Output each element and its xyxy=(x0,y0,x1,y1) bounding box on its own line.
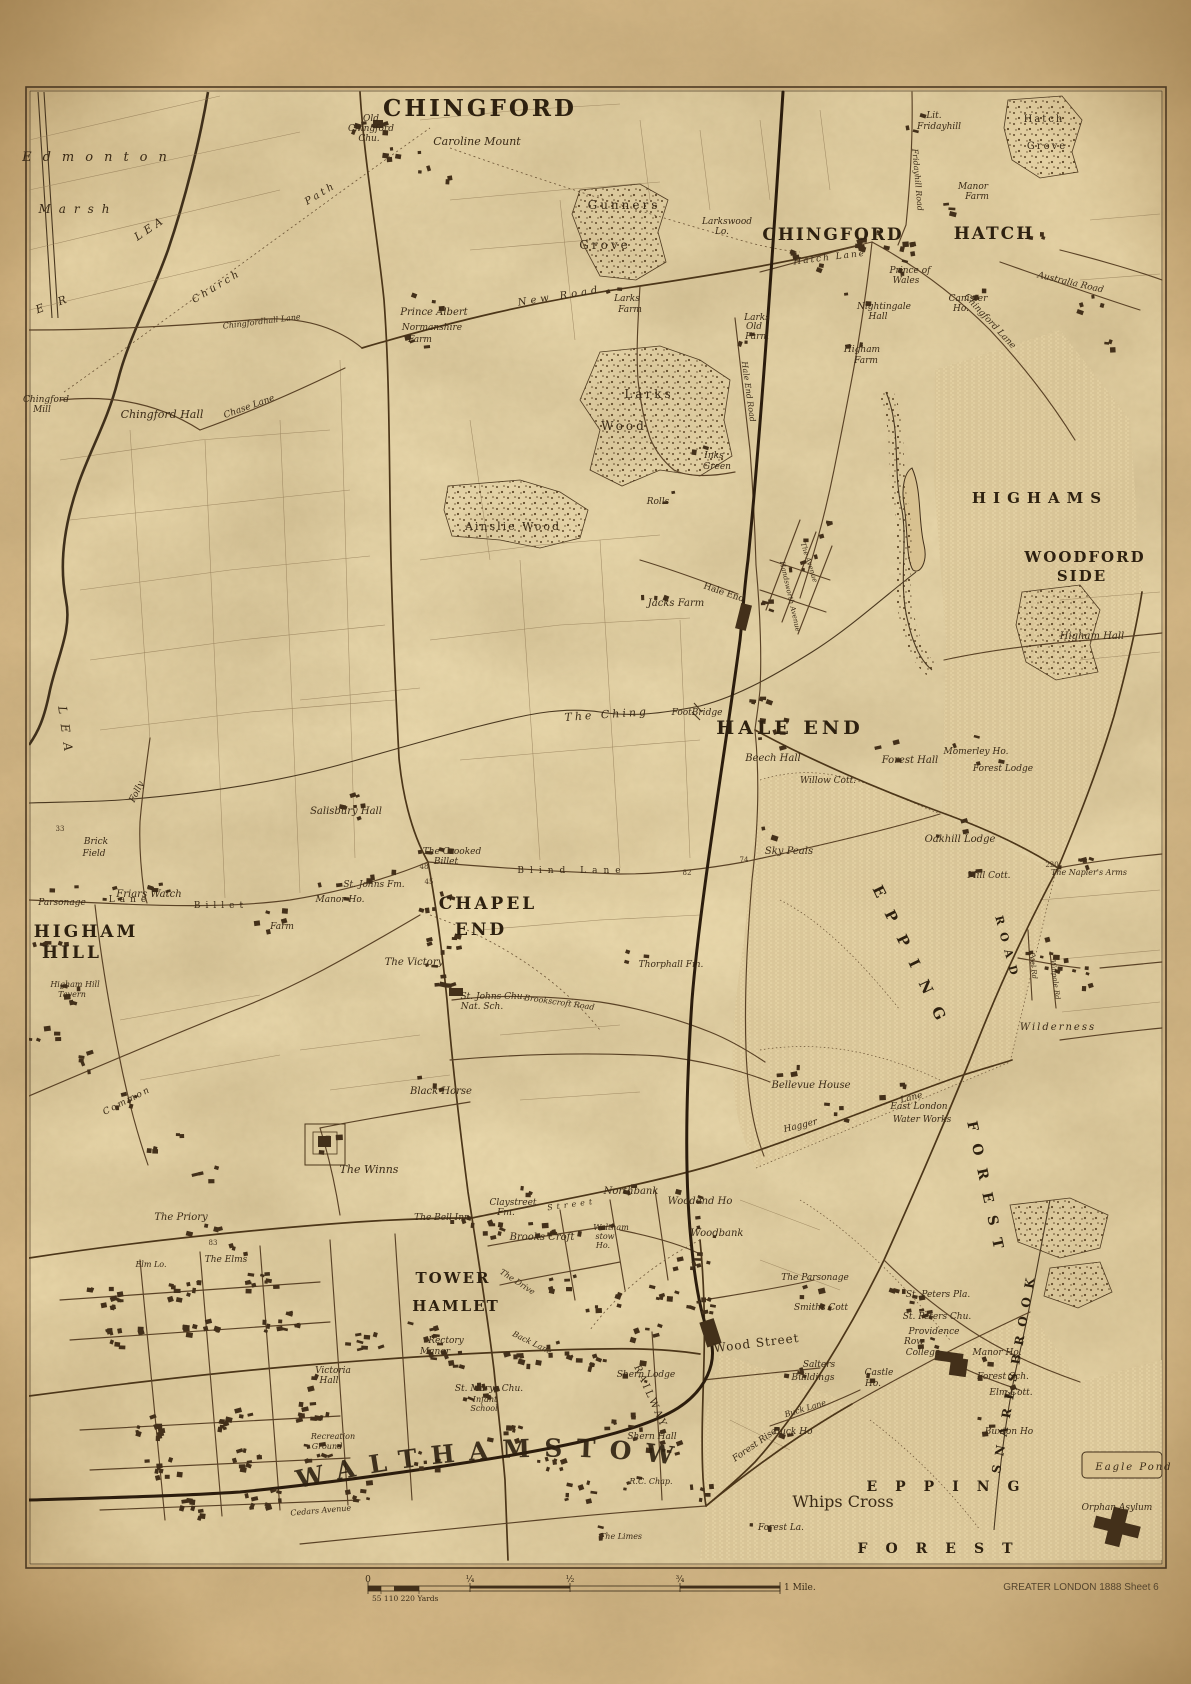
map-label: Oakhill Lodge xyxy=(925,834,996,845)
map-label: Field xyxy=(81,849,105,859)
map-label: FOREST xyxy=(858,1541,1031,1557)
building xyxy=(987,1362,994,1367)
building xyxy=(690,1266,694,1270)
building xyxy=(699,1498,703,1502)
building xyxy=(424,345,430,349)
map-label: Larks xyxy=(613,294,640,304)
building xyxy=(1040,232,1044,237)
map-label: HAMLET xyxy=(412,1297,500,1315)
map-label: Fm. xyxy=(496,1208,515,1218)
building xyxy=(239,1414,244,1418)
building xyxy=(246,1289,252,1294)
map-label: St. Marys Chu. xyxy=(455,1384,523,1394)
building xyxy=(565,1493,569,1497)
building xyxy=(54,1032,60,1036)
building xyxy=(441,950,445,955)
building xyxy=(418,151,422,154)
building xyxy=(117,1291,124,1297)
building xyxy=(631,1415,636,1419)
building xyxy=(709,1484,714,1489)
map-label: Victoria xyxy=(315,1366,351,1376)
building xyxy=(387,157,393,162)
building xyxy=(506,1425,512,1431)
map-label: Woodbank xyxy=(691,1228,744,1239)
map-label: Billet xyxy=(433,857,459,867)
building xyxy=(273,1285,280,1289)
building xyxy=(595,1305,598,1308)
building xyxy=(391,870,396,875)
building xyxy=(535,1360,542,1366)
building xyxy=(691,449,696,455)
building xyxy=(483,1231,488,1236)
map-label: Infant xyxy=(472,1395,498,1404)
building xyxy=(208,1179,214,1183)
map-label: Wales xyxy=(893,276,920,286)
map-label: Orphan Asylum xyxy=(1082,1503,1153,1513)
map-label: The Crooked xyxy=(423,847,482,857)
building xyxy=(186,1332,193,1338)
building xyxy=(254,920,261,926)
map-label: Brick xyxy=(83,837,108,847)
map-label: Billet xyxy=(194,901,248,911)
building xyxy=(777,1073,784,1077)
building xyxy=(641,595,644,600)
map-canvas: CHINGFORDCHINGFORDHATCHHIGHAMSWOODFORDSI… xyxy=(0,0,1191,1684)
map-label: Prince Albert xyxy=(399,307,468,318)
map-label: Farm xyxy=(617,305,642,315)
building xyxy=(761,826,765,830)
building xyxy=(623,1487,627,1490)
map-label: Lane xyxy=(109,895,151,905)
building xyxy=(326,1136,330,1139)
building xyxy=(239,1464,246,1468)
building xyxy=(471,1223,475,1228)
map-label: Elm Cott. xyxy=(988,1388,1032,1398)
map-label: Marsh xyxy=(37,202,117,216)
building xyxy=(576,1358,583,1363)
map-label: Salters xyxy=(803,1360,836,1370)
building xyxy=(182,1325,187,1330)
map-label: CHINGFORD xyxy=(762,225,903,245)
building xyxy=(176,1133,180,1136)
map-label: Salisbury Hall xyxy=(310,806,382,817)
building xyxy=(117,1328,122,1334)
map-label: Mill Cott. xyxy=(966,871,1010,881)
map-label: St. Peters Pla. xyxy=(906,1290,971,1300)
map-label: Chingford Hall xyxy=(121,408,204,421)
map-label: Larks xyxy=(624,387,673,401)
map-label: FootBridge xyxy=(671,708,723,718)
map-label: Wilderness xyxy=(1020,1022,1096,1033)
building xyxy=(797,1065,800,1070)
map-label: Nightingale xyxy=(856,302,911,312)
map-label: Gunners xyxy=(588,198,661,212)
building xyxy=(55,1037,61,1041)
building xyxy=(257,1455,263,1460)
building xyxy=(1085,966,1089,970)
map-label: stow xyxy=(596,1232,615,1241)
building xyxy=(1044,966,1048,970)
map-label: Nat. Sch. xyxy=(460,1002,504,1012)
map-label: Shern Lodge xyxy=(617,1370,676,1380)
building xyxy=(1082,986,1086,991)
map-label: 33 xyxy=(56,825,65,833)
scale-mile: 1 Mile. xyxy=(784,1583,816,1593)
map-label: Green xyxy=(703,462,731,472)
building xyxy=(74,885,78,888)
building xyxy=(119,1345,126,1349)
building xyxy=(157,1466,160,1470)
sheet-attribution: GREATER LONDON 1888 Sheet 6 xyxy=(1003,1582,1159,1593)
building xyxy=(50,888,56,892)
building xyxy=(147,1148,152,1153)
building xyxy=(366,1480,373,1486)
building xyxy=(800,1295,805,1299)
map-label: Smiths Cott xyxy=(794,1303,848,1313)
map-label: Manor Ho. xyxy=(972,1348,1022,1358)
map-label: The Parsonage xyxy=(781,1273,849,1283)
map-label: Manor xyxy=(957,182,989,192)
map-label: Bellevue House xyxy=(771,1080,851,1091)
map-label: Blind Lane xyxy=(517,866,626,876)
building xyxy=(1091,295,1094,299)
building xyxy=(360,1489,367,1494)
building xyxy=(697,1252,703,1256)
building xyxy=(310,1417,317,1421)
building xyxy=(165,1475,170,1479)
map-label: Woodend Ho xyxy=(668,1196,733,1207)
building xyxy=(179,1134,184,1138)
building xyxy=(910,251,915,256)
map-label: Fridayhill xyxy=(916,122,961,132)
building xyxy=(345,1489,351,1495)
building xyxy=(298,1402,303,1407)
map-label: St. Johns Fm. xyxy=(343,880,404,890)
building xyxy=(694,1258,701,1261)
map-label: Chingford xyxy=(348,124,394,134)
map-label: St. Peters Chu. xyxy=(903,1312,972,1322)
map-label: Buildings xyxy=(791,1373,835,1383)
building xyxy=(1063,958,1068,963)
building xyxy=(262,1320,266,1325)
building xyxy=(644,954,650,958)
map-label: CHAPEL xyxy=(439,894,537,914)
map-label: Farm xyxy=(964,192,989,202)
building xyxy=(802,568,805,571)
map-label: Waltham xyxy=(593,1223,629,1232)
building xyxy=(879,1095,886,1100)
building xyxy=(432,907,436,911)
building xyxy=(447,946,452,950)
map-label: Willow Cott. xyxy=(800,776,856,786)
map-label: Elm Lo. xyxy=(134,1260,166,1269)
map-label: Grove xyxy=(1027,141,1067,152)
map-label: Higham Hall xyxy=(1059,631,1124,642)
map-label: Hall xyxy=(868,312,888,322)
map-label: Rolls xyxy=(646,497,670,507)
map-label: Eagle Pond xyxy=(1094,1462,1172,1473)
map-label: Ho. xyxy=(952,304,969,314)
building xyxy=(705,1493,711,1497)
map-label: Caroline Mount xyxy=(433,135,521,148)
map-label: Farm xyxy=(269,922,294,932)
map-label: HILL xyxy=(42,943,102,963)
map-label: Sky Peals xyxy=(765,846,813,857)
map-label: Larkswood xyxy=(701,217,752,227)
map-label: East London xyxy=(889,1102,947,1112)
map-label: Normanshire xyxy=(401,323,462,333)
map-label: Higham Hill xyxy=(49,980,100,989)
building xyxy=(525,1193,530,1197)
building xyxy=(447,175,452,180)
map-label: Recreation xyxy=(310,1432,355,1441)
building xyxy=(445,983,452,988)
building xyxy=(750,1523,753,1527)
building xyxy=(1110,347,1116,353)
map-label: 82 xyxy=(683,869,692,877)
map-label: Forest Lodge xyxy=(972,764,1033,774)
map-label: Wood xyxy=(601,419,647,433)
map-sheet: CHINGFORDCHINGFORDHATCHHIGHAMSWOODFORDSI… xyxy=(0,0,1191,1684)
map-label: END xyxy=(455,920,507,940)
map-label: The Winns xyxy=(340,1163,399,1176)
map-label: Farm xyxy=(744,332,769,342)
scale-threequarter: ¾ xyxy=(676,1574,685,1585)
map-label: Farm xyxy=(407,335,432,345)
building xyxy=(418,170,422,173)
building xyxy=(839,1106,844,1110)
building xyxy=(977,1417,981,1421)
building xyxy=(174,1289,181,1293)
map-label: HALE END xyxy=(716,717,863,739)
map-label: Water Works xyxy=(893,1115,952,1125)
building xyxy=(982,289,986,294)
building xyxy=(278,1319,282,1323)
map-label: CHINGFORD xyxy=(383,95,577,122)
building xyxy=(432,300,436,304)
map-label: Momerley Ho. xyxy=(943,747,1009,757)
building xyxy=(564,1279,570,1282)
map-label: Forest Hall xyxy=(881,755,939,766)
building xyxy=(565,1351,570,1355)
scale-quarter: ¼ xyxy=(466,1574,475,1585)
building xyxy=(109,1287,114,1291)
scale-zero: 0 xyxy=(365,1575,371,1585)
building xyxy=(695,1216,701,1220)
map-label: Parsonage xyxy=(37,898,86,908)
map-label: 83 xyxy=(209,1239,218,1247)
building xyxy=(336,1135,343,1141)
map-label: Edmonton xyxy=(21,150,178,165)
building xyxy=(595,1308,602,1313)
map-label: Hall xyxy=(319,1376,339,1386)
map-label: School xyxy=(470,1404,498,1413)
building xyxy=(417,1076,422,1080)
map-label: Forest La. xyxy=(757,1523,804,1533)
building xyxy=(278,1498,282,1503)
map-label: The Victory xyxy=(385,957,444,968)
building xyxy=(345,1342,351,1346)
building xyxy=(44,1026,51,1032)
building xyxy=(87,1287,94,1292)
map-label: College xyxy=(906,1348,940,1358)
map-label: Ainslie Wood xyxy=(464,520,561,533)
map-label: The Bell Inn xyxy=(414,1213,470,1223)
building xyxy=(390,147,393,151)
map-label: HATCH xyxy=(954,224,1035,244)
building xyxy=(489,1223,496,1226)
building xyxy=(196,1280,201,1285)
map-label: Buxton Ho xyxy=(984,1427,1034,1437)
map-label: SIDE xyxy=(1057,567,1107,585)
building xyxy=(440,974,446,978)
building xyxy=(784,1373,790,1378)
map-label: HIGHAM xyxy=(34,922,139,942)
map-label: Tavern xyxy=(58,990,86,999)
building xyxy=(87,1069,91,1074)
building xyxy=(117,1299,123,1302)
building xyxy=(701,1297,706,1302)
building xyxy=(171,1285,176,1289)
map-label: Hatch xyxy=(1024,114,1065,125)
map-label: Ho. xyxy=(864,1379,881,1389)
building xyxy=(434,983,439,987)
map-label: The Limes xyxy=(600,1532,642,1541)
map-label: R.C. Chap. xyxy=(628,1477,672,1486)
building xyxy=(159,882,164,886)
building xyxy=(220,1425,225,1429)
map-label: Ho. xyxy=(595,1241,610,1250)
building xyxy=(768,599,774,604)
map-label: Providence xyxy=(908,1327,960,1337)
building xyxy=(186,1282,190,1287)
building xyxy=(458,1351,462,1355)
building xyxy=(696,1301,700,1304)
map-label: 74 xyxy=(740,856,749,864)
building xyxy=(395,154,401,160)
map-label: Old xyxy=(363,114,379,124)
building xyxy=(418,850,422,855)
building xyxy=(306,1445,310,1449)
map-label: 45 xyxy=(425,878,434,886)
building xyxy=(516,1353,523,1358)
map-label: 48 xyxy=(420,863,429,871)
map-label: Ground xyxy=(312,1442,342,1451)
building xyxy=(604,1427,610,1431)
map-label: Rectory xyxy=(427,1336,464,1346)
building xyxy=(585,1309,589,1313)
building xyxy=(177,1472,183,1478)
map-label: Mill xyxy=(32,405,51,415)
building xyxy=(103,898,107,901)
building xyxy=(319,1150,325,1155)
building xyxy=(844,292,848,295)
building xyxy=(617,287,622,291)
map-label: Prince of xyxy=(888,266,932,276)
building xyxy=(138,1327,144,1332)
map-label: Grove xyxy=(579,238,630,252)
map-label: Manor xyxy=(419,1347,451,1357)
building xyxy=(690,1484,694,1490)
building xyxy=(424,1338,428,1343)
building xyxy=(282,908,288,914)
map-label: Old xyxy=(746,322,762,332)
building xyxy=(528,1222,533,1226)
building xyxy=(264,1272,270,1276)
map-label: Claystreet xyxy=(489,1198,536,1208)
building xyxy=(79,1058,84,1062)
building xyxy=(364,1335,371,1340)
building xyxy=(542,1223,549,1229)
map-label: 220 xyxy=(1045,861,1058,869)
building xyxy=(144,1459,149,1463)
building xyxy=(824,1103,830,1107)
map-label: Whips Cross xyxy=(792,1492,893,1511)
building xyxy=(310,1402,317,1406)
map-label: Chingford xyxy=(23,395,69,405)
map-label: WOODFORD xyxy=(1023,548,1145,566)
building xyxy=(425,907,430,913)
map-label: Black Horse xyxy=(409,1086,472,1097)
map-label: The Napier's Arms xyxy=(1051,868,1127,877)
map-label: Thorphall Fm. xyxy=(639,960,704,970)
map-label: Chu. xyxy=(358,134,379,144)
map-label: Manor Ho. xyxy=(315,895,365,905)
scale-yards: 55 110 220 Yards xyxy=(372,1594,439,1603)
map-label: The Priory xyxy=(154,1212,208,1223)
building xyxy=(834,1112,838,1116)
map-label: The Elms xyxy=(205,1255,248,1265)
building xyxy=(453,1365,459,1368)
map-label: TOWER xyxy=(416,1269,491,1287)
building xyxy=(336,883,343,887)
map-label: Lo. xyxy=(714,227,729,237)
building xyxy=(152,1149,158,1154)
map-label: Farm xyxy=(853,356,878,366)
map-label: Higham xyxy=(843,345,880,355)
map-label: Beech Hall xyxy=(744,753,800,764)
map-label: Buck Ho xyxy=(772,1427,813,1437)
map-label: HIGHAMS xyxy=(972,489,1108,507)
building xyxy=(199,1513,206,1519)
map-label: Inks xyxy=(703,451,724,461)
map-label: Castle xyxy=(865,1368,894,1378)
building xyxy=(520,1186,524,1191)
building xyxy=(948,207,955,210)
building xyxy=(566,1287,572,1291)
building xyxy=(498,1222,503,1228)
scale-half: ½ xyxy=(566,1574,575,1585)
building xyxy=(645,1328,650,1331)
building xyxy=(667,1296,673,1302)
building xyxy=(749,699,756,703)
map-label: Row xyxy=(903,1337,924,1347)
building xyxy=(709,1311,713,1315)
map-label: Jacks Farm xyxy=(646,598,704,609)
map-label: Northbank xyxy=(603,1186,659,1197)
map-label: Forest Sch. xyxy=(976,1372,1029,1382)
map-label: St. Johns Chu. xyxy=(461,992,526,1002)
map-label: Brooks Croft xyxy=(509,1232,576,1243)
map-label: Lit. xyxy=(925,111,941,121)
building xyxy=(526,1364,530,1370)
